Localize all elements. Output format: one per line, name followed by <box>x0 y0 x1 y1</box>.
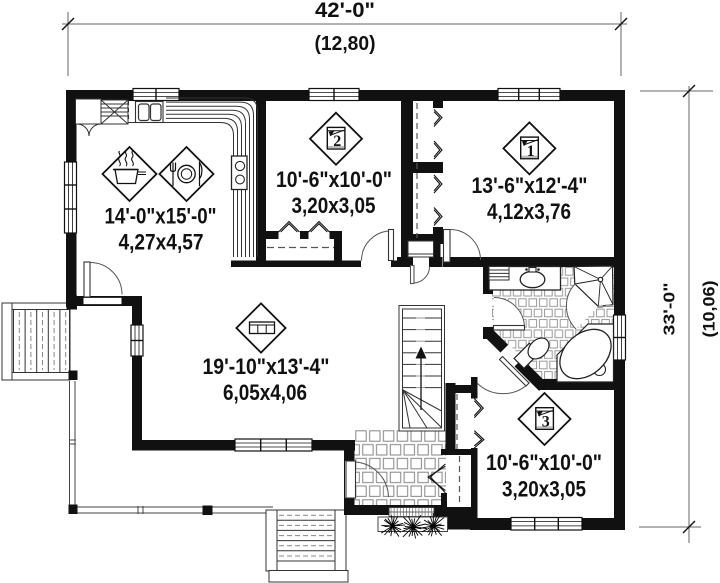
svg-text:6,05x4,06: 6,05x4,06 <box>223 380 307 405</box>
svg-text:10'-6"x10'-0": 10'-6"x10'-0" <box>486 450 602 475</box>
svg-text:42'-0": 42'-0" <box>315 0 375 22</box>
svg-text:3: 3 <box>542 413 550 430</box>
svg-text:10'-6"x10'-0": 10'-6"x10'-0" <box>276 167 392 192</box>
svg-text:4,27x4,57: 4,27x4,57 <box>119 230 204 255</box>
svg-text:4,12x3,76: 4,12x3,76 <box>487 199 571 224</box>
svg-text:(10,06): (10,06) <box>701 281 719 338</box>
svg-text:3,20x3,05: 3,20x3,05 <box>502 477 586 502</box>
svg-text:3,20x3,05: 3,20x3,05 <box>292 193 376 218</box>
svg-text:19'-10"x13'-4": 19'-10"x13'-4" <box>203 354 330 379</box>
svg-text:1: 1 <box>527 143 535 160</box>
svg-text:14'-0"x15'-0": 14'-0"x15'-0" <box>105 204 217 229</box>
svg-text:2: 2 <box>333 133 341 150</box>
svg-text:13'-6"x12'-4": 13'-6"x12'-4" <box>472 173 588 198</box>
svg-text:33'-0": 33'-0" <box>662 283 679 336</box>
svg-text:(12,80): (12,80) <box>315 33 376 55</box>
